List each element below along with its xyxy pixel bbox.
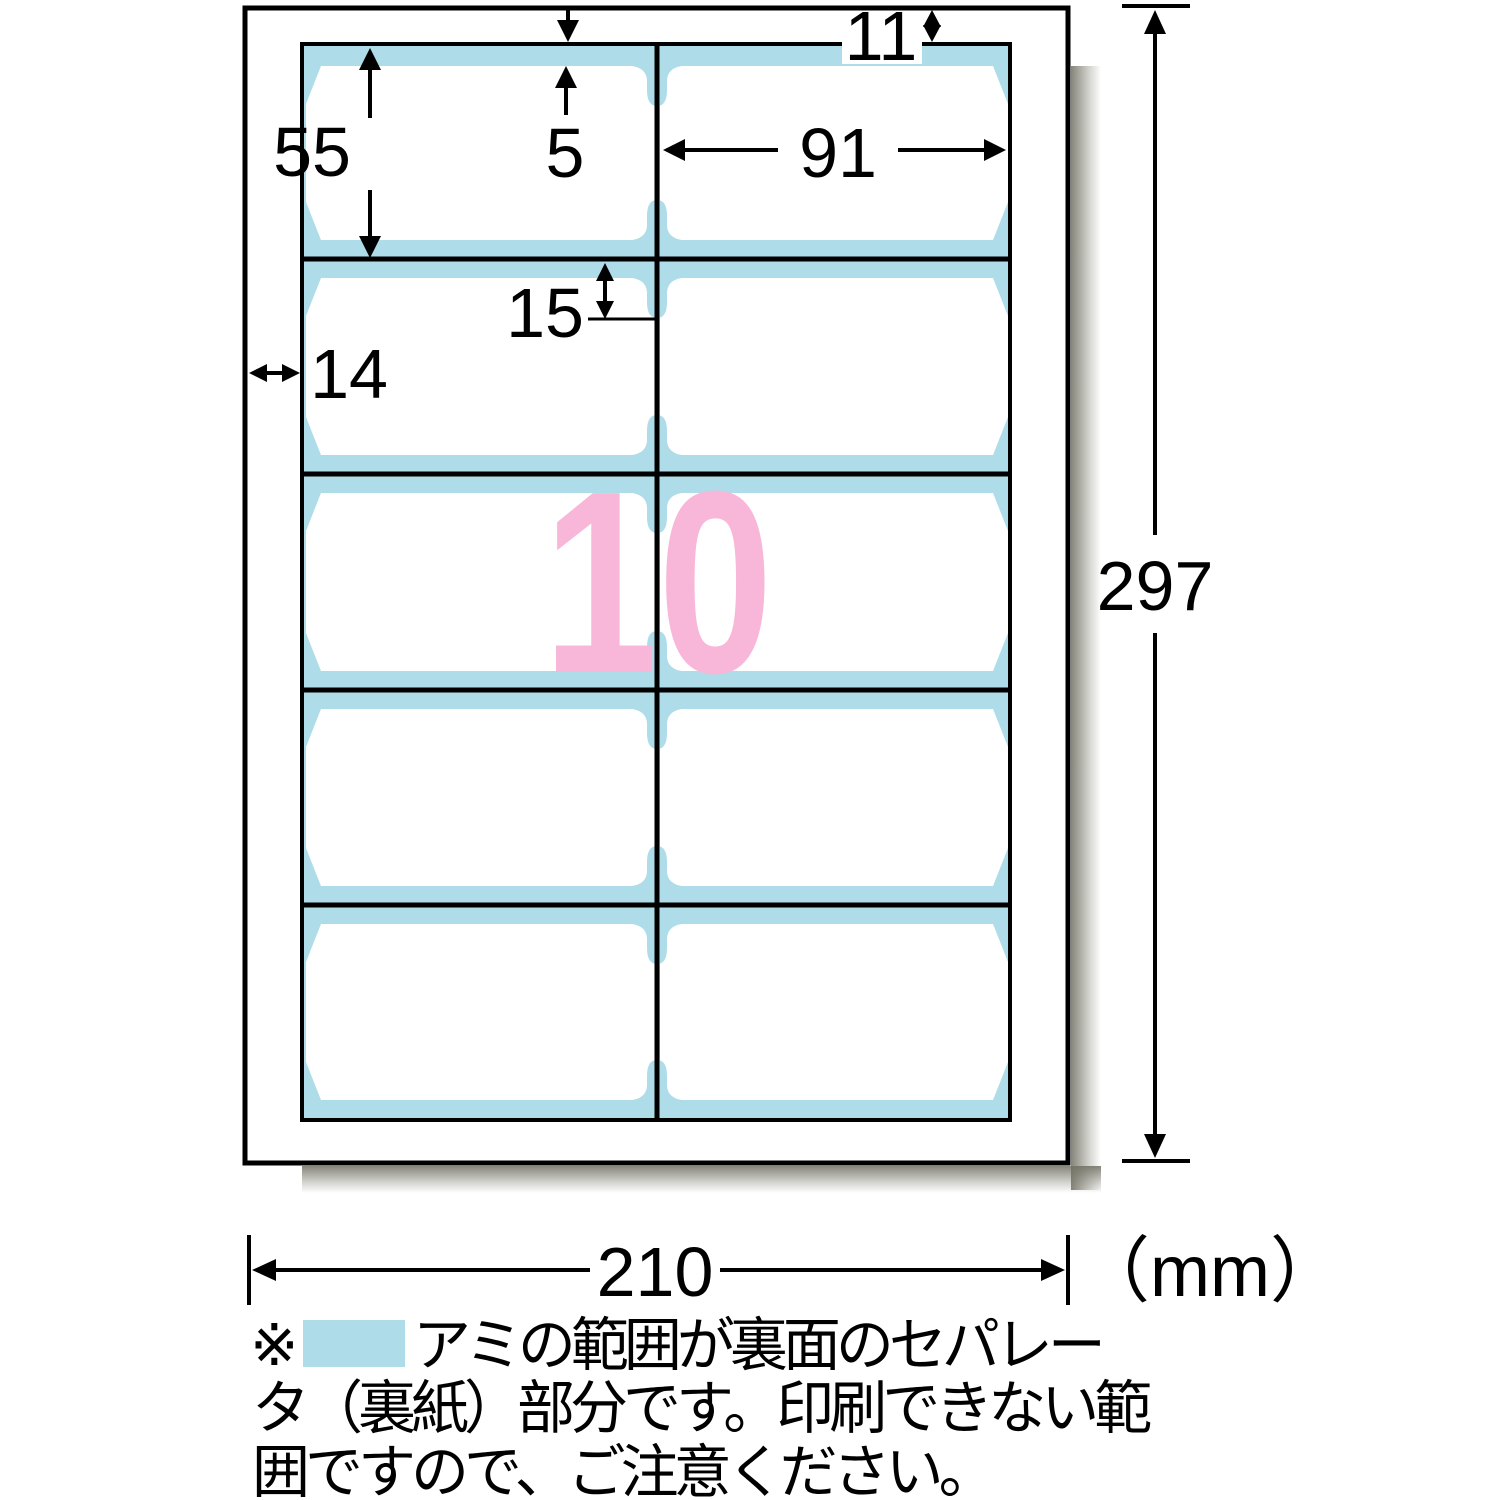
label-sheet-diagram: 10 11 5 55 91 xyxy=(0,0,1500,1500)
paper-shadow-bottom xyxy=(302,1166,1101,1193)
dim-top-margin-value: 11 xyxy=(845,0,918,75)
unit-label: （mm） xyxy=(1078,1232,1342,1312)
dim-page-height: 297 xyxy=(1097,6,1214,1161)
note-line-3: 囲ですので、ご注意ください。 xyxy=(252,1440,992,1500)
dim-card-width-value: 91 xyxy=(799,114,877,192)
arrow-right-icon xyxy=(1041,1259,1065,1281)
dim-left-margin-value: 14 xyxy=(310,335,388,413)
card-cell xyxy=(660,924,1008,1100)
dim-page-width-value: 210 xyxy=(597,1233,714,1311)
arrow-down-icon xyxy=(1144,1134,1166,1158)
separator-color-swatch xyxy=(303,1320,405,1367)
card-cell xyxy=(660,709,1008,886)
dim-page-height-value: 297 xyxy=(1097,547,1214,625)
caution-note: ※ アミの範囲が裏面のセパレー タ（裏紙）部分です。印刷できない範 囲ですので、… xyxy=(250,1313,1151,1500)
note-marker: ※ xyxy=(250,1313,294,1378)
note-line-2: タ（裏紙）部分です。印刷できない範 xyxy=(252,1376,1151,1441)
dim-page-width: 210 （mm） xyxy=(249,1232,1342,1312)
card-cell xyxy=(306,924,655,1100)
dim-edge-gap-value: 5 xyxy=(546,114,585,192)
paper-shadow-right xyxy=(1071,66,1101,1190)
card-cell xyxy=(306,66,655,240)
note-line-1: アミの範囲が裏面のセパレー xyxy=(413,1313,1101,1378)
dim-card-height-value: 55 xyxy=(273,113,351,191)
card-cell xyxy=(306,709,655,886)
dim-separator-overlap-value: 15 xyxy=(506,274,584,352)
card-cell xyxy=(660,278,1008,455)
